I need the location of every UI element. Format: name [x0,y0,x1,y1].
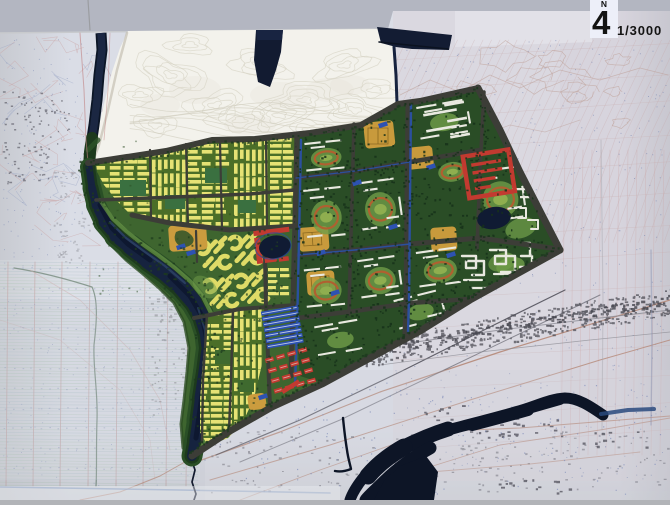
svg-text:1/3000: 1/3000 [617,23,662,38]
svg-text:4: 4 [592,4,611,41]
